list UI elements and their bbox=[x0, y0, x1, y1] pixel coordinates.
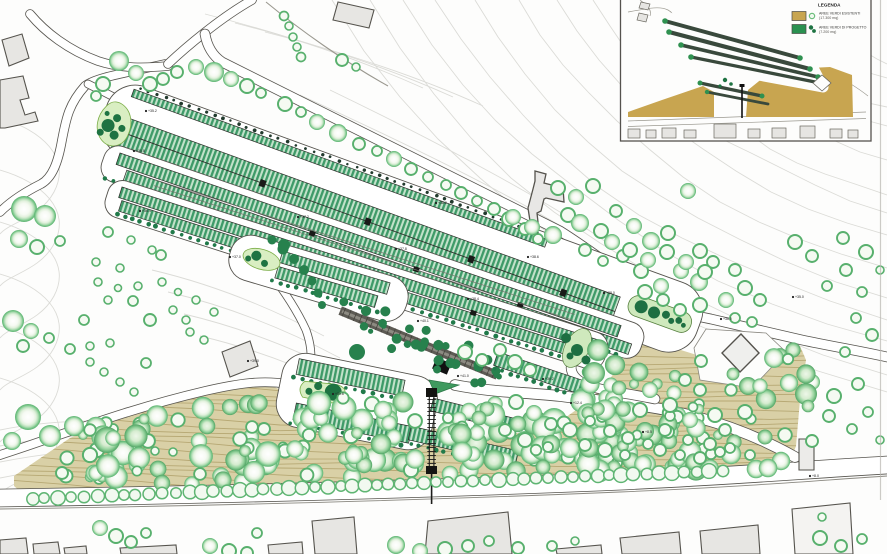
svg-text:+37.2: +37.2 bbox=[300, 215, 309, 219]
svg-text:+38.6: +38.6 bbox=[530, 255, 539, 259]
svg-text:LEGENDA: LEGENDA bbox=[818, 3, 841, 8]
svg-text:+41.0: +41.0 bbox=[460, 374, 469, 378]
svg-text:+35.0: +35.0 bbox=[795, 295, 804, 299]
svg-text:+38.4: +38.4 bbox=[470, 297, 479, 301]
svg-text:+39.0: +39.0 bbox=[250, 359, 259, 363]
svg-text:+8.5: +8.5 bbox=[645, 430, 652, 434]
svg-text:+12.4: +12.4 bbox=[573, 401, 582, 405]
svg-text:+37.0: +37.0 bbox=[232, 255, 241, 259]
svg-text:+38.2: +38.2 bbox=[438, 201, 447, 205]
svg-text:AREE VERDI ESISTENTI: AREE VERDI ESISTENTI bbox=[819, 12, 860, 16]
svg-text:+38.0: +38.0 bbox=[606, 291, 615, 295]
svg-text:+37.8: +37.8 bbox=[398, 247, 407, 251]
svg-text:+8.0: +8.0 bbox=[812, 474, 819, 478]
svg-text:(17.300 mq): (17.300 mq) bbox=[819, 16, 838, 20]
svg-text:+40.1: +40.1 bbox=[420, 319, 429, 323]
svg-text:+36.0: +36.0 bbox=[723, 317, 732, 321]
svg-text:(7.200 mq): (7.200 mq) bbox=[819, 30, 836, 34]
svg-text:+39.2: +39.2 bbox=[545, 377, 554, 381]
svg-text:AREE VERDI DI PROGETTO: AREE VERDI DI PROGETTO bbox=[819, 26, 867, 30]
svg-text:+35.8: +35.8 bbox=[136, 149, 145, 153]
svg-text:+35.2: +35.2 bbox=[148, 109, 157, 113]
svg-text:+36.4: +36.4 bbox=[142, 209, 151, 213]
svg-text:+39.6: +39.6 bbox=[335, 392, 344, 396]
